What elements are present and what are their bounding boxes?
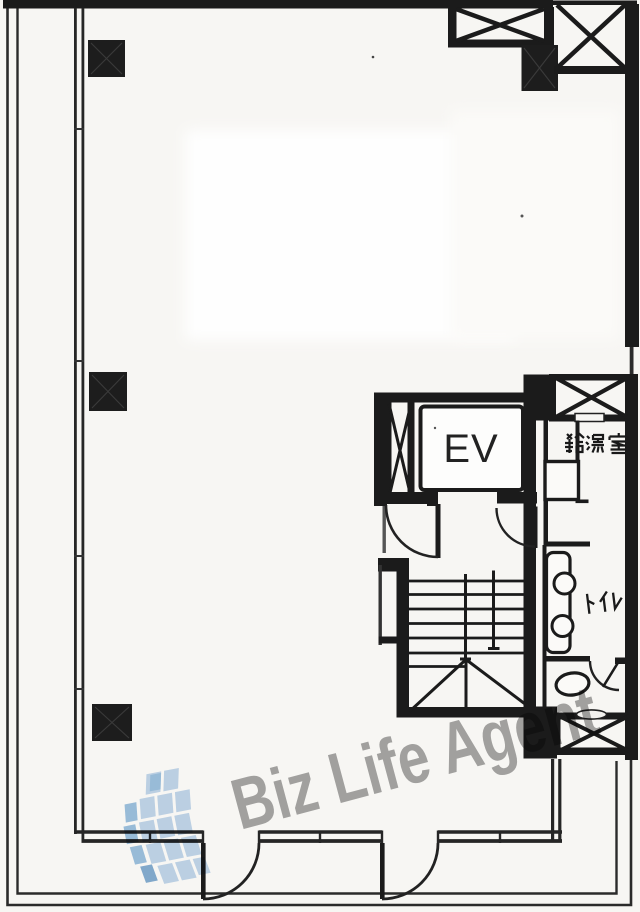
svg-text:EV: EV (443, 427, 498, 471)
